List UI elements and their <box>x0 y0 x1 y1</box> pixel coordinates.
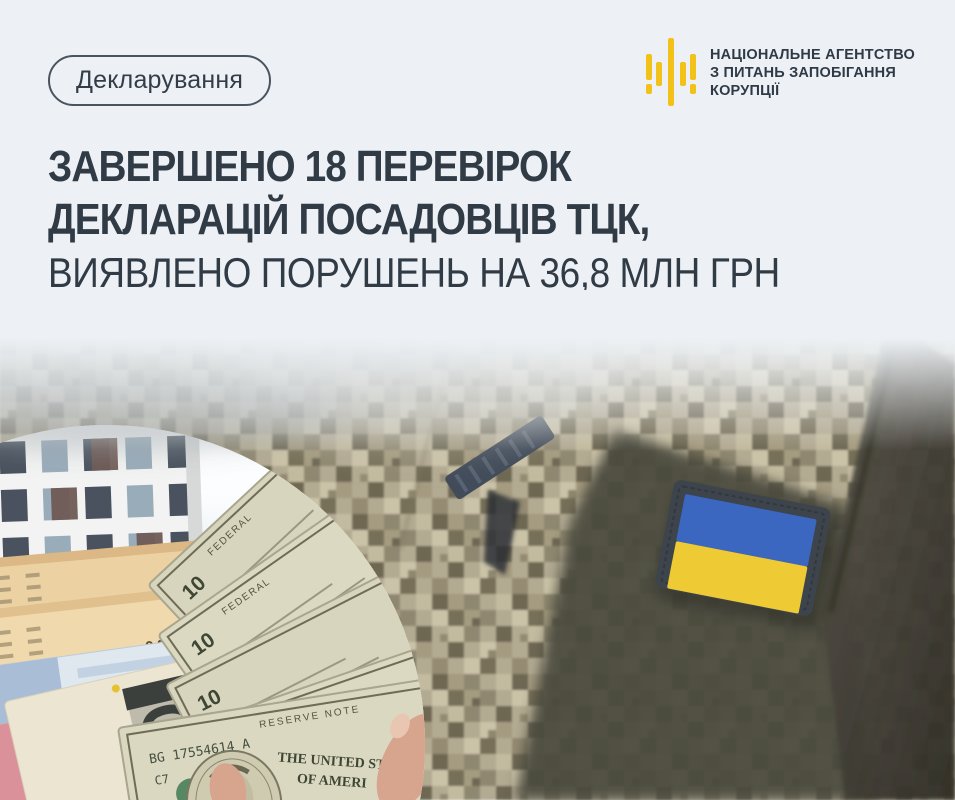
headline-line-1: ЗАВЕРШЕНО 18 ПЕРЕВІРОК <box>48 140 780 193</box>
agency-name: НАЦІОНАЛЬНЕ АГЕНТСТВО З ПИТАНЬ ЗАПОБІГАН… <box>710 46 915 100</box>
usd-plate: C7 <box>154 772 170 788</box>
agency-name-line3: КОРУПЦІЇ <box>710 82 915 100</box>
agency-name-line1: НАЦІОНАЛЬНЕ АГЕНТСТВО <box>710 46 915 64</box>
category-badge-label: Декларування <box>76 66 243 94</box>
photo-collage: 919103604 90878044288 <box>0 290 955 800</box>
top-fade <box>0 290 955 450</box>
agency-name-line2: З ПИТАНЬ ЗАПОБІГАННЯ <box>710 64 915 82</box>
headline: ЗАВЕРШЕНО 18 ПЕРЕВІРОК ДЕКЛАРАЦІЙ ПОСАДО… <box>48 140 780 299</box>
nazk-trident-logo-icon <box>644 36 698 110</box>
social-card: Декларування НАЦІОНАЛЬНЕ АГЕНТСТВО З ПИТ… <box>0 0 955 800</box>
category-badge: Декларування <box>48 55 271 106</box>
agency-brand: НАЦІОНАЛЬНЕ АГЕНТСТВО З ПИТАНЬ ЗАПОБІГАН… <box>644 36 915 110</box>
headline-line-2: ДЕКЛАРАЦІЙ ПОСАДОВЦІВ ТЦК, <box>48 193 780 246</box>
